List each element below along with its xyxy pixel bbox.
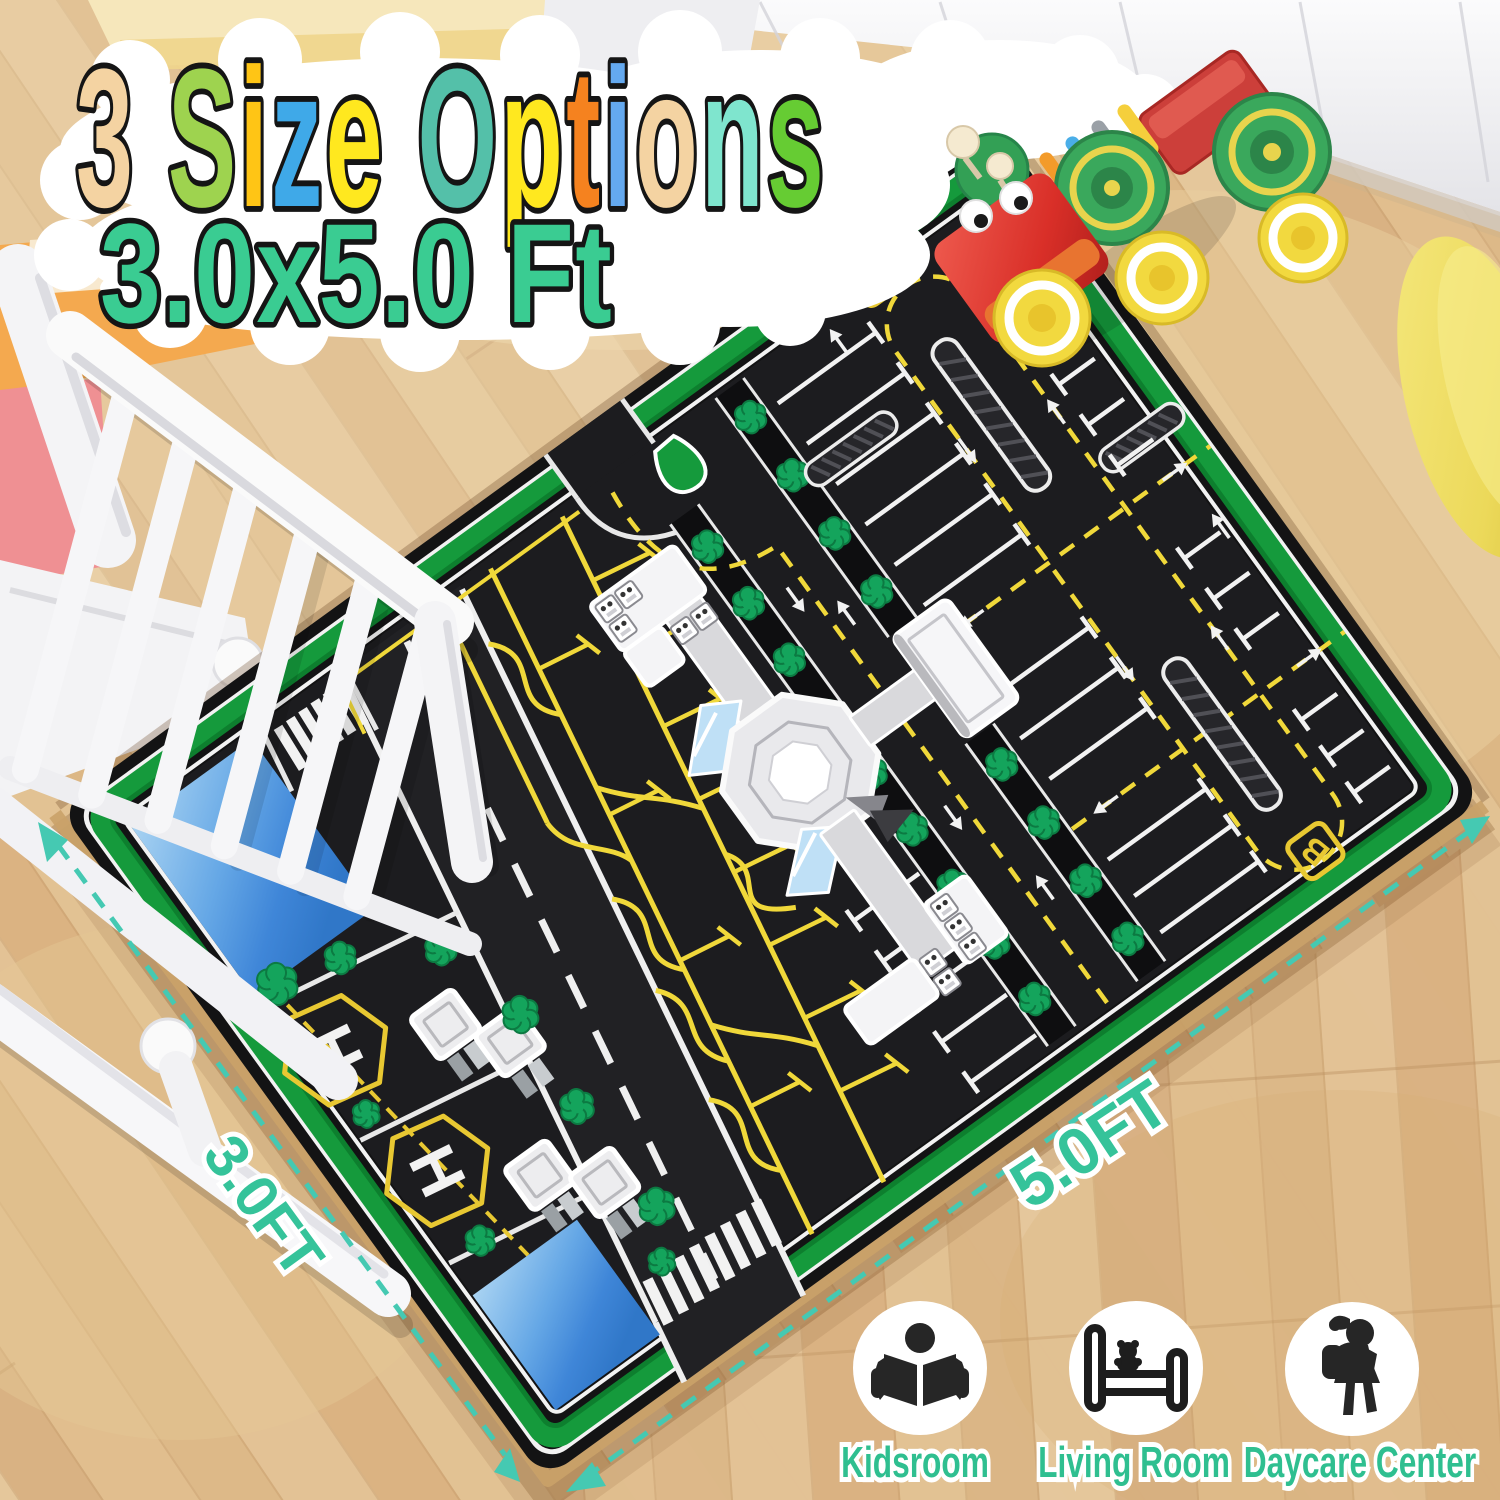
svg-text:Daycare Center: Daycare Center [1244,1438,1476,1487]
svg-text:Living Room: Living Room [1038,1438,1230,1487]
svg-text:3.0x5.0 Ft: 3.0x5.0 Ft [100,195,613,353]
svg-text:Kidsroom: Kidsroom [841,1438,989,1487]
